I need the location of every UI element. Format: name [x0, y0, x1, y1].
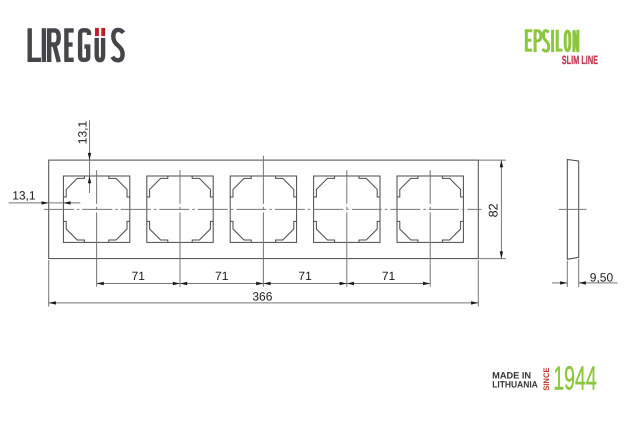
svg-text:71: 71	[132, 269, 146, 283]
svg-text:82: 82	[486, 203, 500, 217]
svg-text:9,50: 9,50	[590, 270, 614, 284]
svg-text:13,1: 13,1	[75, 121, 89, 145]
svg-text:LITHUANIA: LITHUANIA	[492, 379, 538, 389]
svg-text:71: 71	[382, 269, 396, 283]
svg-text:71: 71	[215, 269, 229, 283]
svg-text:366: 366	[252, 289, 272, 303]
svg-text:1944: 1944	[553, 361, 596, 398]
svg-text:13,1: 13,1	[12, 188, 36, 202]
svg-text:SINCE: SINCE	[542, 367, 551, 391]
svg-text:SLIM LINE: SLIM LINE	[562, 53, 598, 67]
svg-text:71: 71	[298, 269, 312, 283]
